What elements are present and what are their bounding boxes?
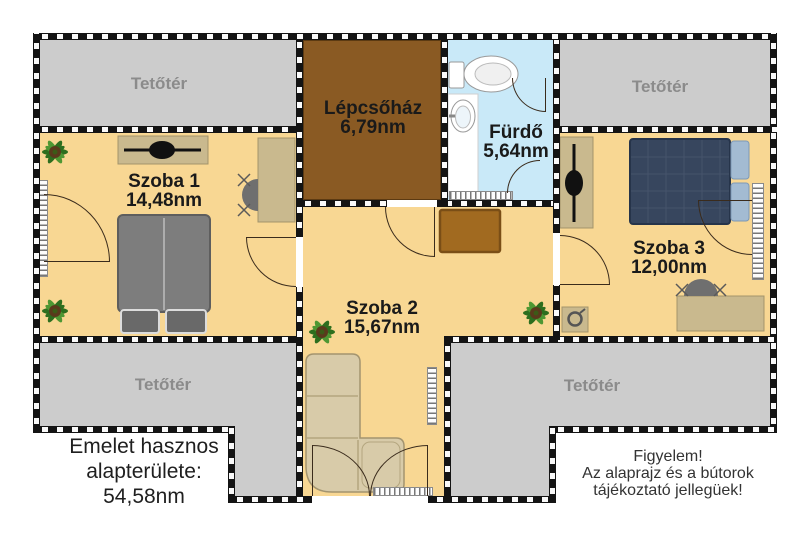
potted-plant-room2-left	[309, 319, 335, 345]
staircase-name: Lépcsőház	[324, 99, 422, 118]
room3-label: Szoba 3 12,00nm	[631, 239, 707, 277]
potted-plant-room1-top	[42, 139, 68, 165]
room2-name: Szoba 2	[344, 299, 420, 318]
total-area-line1: Emelet hasznos	[38, 434, 250, 459]
wall-outer-right	[770, 33, 777, 433]
attic-label-top-right: Tetőtér	[632, 77, 688, 97]
disclaimer-line1: Figyelem!	[560, 448, 776, 465]
wall-bottom-center-right	[428, 496, 556, 503]
wall-outer-left	[33, 33, 40, 433]
attic-label-top-left: Tetőtér	[131, 74, 187, 94]
radiator-room3	[752, 183, 764, 280]
staircase-area-value: 6,79nm	[324, 118, 422, 137]
disclaimer-line3: tájékoztató jellegüek!	[560, 482, 776, 499]
wall-step-right	[549, 426, 556, 503]
bathroom-name: Fürdő	[483, 123, 548, 142]
wall-staircase-bottom-left	[296, 200, 387, 207]
washbasin-icon	[448, 94, 478, 196]
wall-attic-br-top	[444, 336, 777, 343]
total-area-line2: alapterülete:	[38, 459, 250, 484]
toilet-icon	[449, 56, 518, 92]
attic-label-bottom-left: Tetőtér	[135, 375, 191, 395]
attic-label-bottom-right: Tetőtér	[564, 376, 620, 396]
wall-attic-bl-top	[33, 336, 303, 343]
radiator-room2-side	[427, 367, 437, 425]
double-bed-room1	[118, 215, 210, 333]
room2-area-value: 15,67nm	[344, 318, 420, 337]
wall-outer-top	[33, 33, 777, 40]
floor-plan: Tetőtér Tetőtér Tetőtér Tetőtér Lépcsőhá…	[0, 0, 800, 541]
wall-room1-room2-lower	[296, 287, 303, 496]
wall-room1-room2-upper	[296, 40, 303, 237]
total-area-value: 54,58nm	[38, 484, 250, 509]
potted-plant-room1-bottom	[42, 298, 68, 324]
room1-label: Szoba 1 14,48nm	[126, 172, 202, 210]
room3-area-value: 12,00nm	[631, 258, 707, 277]
disclaimer-line2: Az alaprajz és a bútorok	[560, 465, 776, 482]
wall-bathroom-bottom	[437, 200, 560, 207]
room3-name: Szoba 3	[631, 239, 707, 258]
wall-room3-left-lower	[553, 285, 560, 340]
office-chair-room1	[238, 174, 258, 216]
desk-room1	[258, 138, 295, 222]
desk-room3	[677, 296, 764, 331]
total-area-note: Emelet hasznos alapterülete: 54,58nm	[38, 434, 250, 509]
nightstand-room3	[562, 307, 588, 332]
room1-name: Szoba 1	[126, 172, 202, 191]
wall-outer-bottom-right	[549, 426, 777, 433]
room2-label: Szoba 2 15,67nm	[344, 299, 420, 337]
disclaimer-note: Figyelem! Az alaprajz és a bútorok tájék…	[560, 448, 776, 499]
staircase-label: Lépcsőház 6,79nm	[324, 99, 422, 137]
wall-outer-bottom-left	[33, 426, 235, 433]
wall-attic-tl-bottom	[33, 126, 303, 133]
wall-room2-attic-br	[444, 340, 451, 496]
radiator-bathroom	[449, 191, 513, 200]
room1-area-value: 14,48nm	[126, 191, 202, 210]
bathroom-label: Fürdő 5,64nm	[483, 123, 548, 161]
chest-room2	[440, 210, 500, 252]
potted-plant-room2-right	[523, 300, 549, 326]
wall-staircase-bathroom	[441, 40, 448, 207]
wall-room3-left-upper	[553, 40, 560, 233]
wall-attic-tr-bottom	[553, 126, 777, 133]
office-chair-room3	[676, 279, 726, 296]
bathroom-area-value: 5,64nm	[483, 142, 548, 161]
